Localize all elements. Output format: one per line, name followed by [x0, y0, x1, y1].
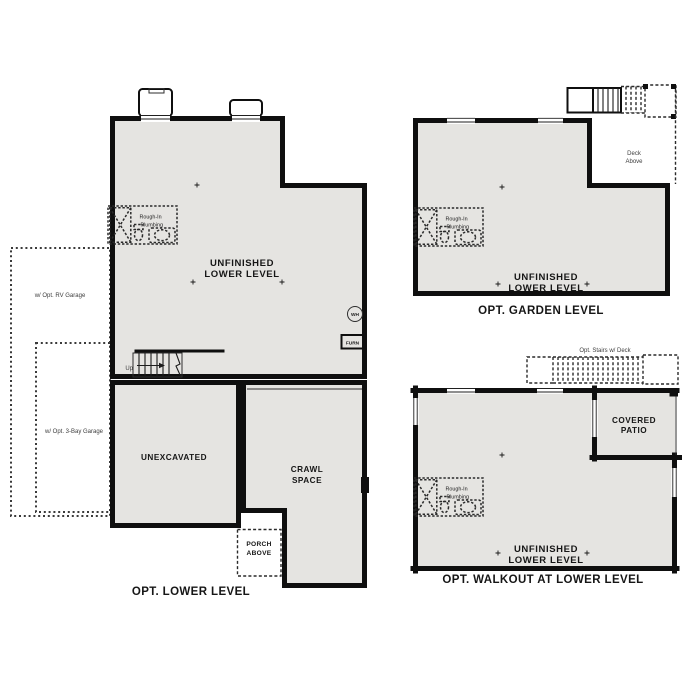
deck-post	[671, 84, 676, 89]
rv-garage-dashed-outline	[11, 248, 110, 516]
deck-stair-dashed-box	[645, 85, 676, 117]
crawl-space-label-1: CRAWL	[291, 465, 324, 474]
porch-above: PORCH ABOVE	[238, 530, 282, 577]
rough-in-label-1: Rough-In	[446, 217, 468, 223]
garden-unfinished-label-2: LOWER LEVEL	[508, 283, 583, 294]
rough-in-label-1: Rough-In	[446, 487, 468, 493]
lower-level-floor-area	[110, 118, 367, 378]
three-bay-garage-label: w/ Opt. 3-Bay Garage	[44, 429, 104, 435]
garden-floor-area	[413, 120, 670, 296]
stair-dashed-treads	[553, 357, 643, 383]
garden-level-title: OPT. GARDEN LEVEL	[478, 305, 604, 317]
stairs-up-label: Up	[125, 366, 133, 372]
deck-post	[643, 84, 648, 89]
window-patio-wall	[591, 400, 598, 437]
porch-label-2: ABOVE	[247, 550, 272, 557]
plan-lower-level: w/ Opt. RV Garage w/ Opt. 3-Bay Garage	[11, 89, 369, 599]
porch-label-1: PORCH	[246, 541, 271, 548]
window-left-wall	[412, 398, 419, 425]
window-right-wall	[671, 468, 678, 497]
stair-landing	[568, 88, 594, 113]
walkout-unfinished-label-2: LOWER LEVEL	[508, 555, 583, 566]
opt-stairs-label: Opt. Stairs w/ Deck	[579, 348, 631, 354]
plan-garden-level: Deck Above Rough-In Plumbing	[413, 84, 676, 317]
garden-unfinished-label-1: UNFINISHED	[514, 272, 578, 283]
rough-in-label-2: Plumbing	[447, 225, 469, 231]
floorplan-sheet: w/ Opt. RV Garage w/ Opt. 3-Bay Garage	[0, 0, 687, 687]
walkout-title: OPT. WALKOUT AT LOWER LEVEL	[442, 574, 643, 586]
stair-upper-dashed-box	[643, 355, 678, 384]
rough-in-label-1: Rough-In	[140, 215, 162, 221]
stair-treads-box	[593, 88, 621, 113]
three-bay-garage-dashed-outline	[36, 343, 110, 512]
furnace-label: FURN	[346, 341, 360, 347]
covered-patio-label-2: PATIO	[621, 426, 647, 435]
covered-patio-label-1: COVERED	[612, 416, 656, 425]
optional-garage-outlines: w/ Opt. RV Garage w/ Opt. 3-Bay Garage	[11, 248, 110, 516]
lower-level-title: OPT. LOWER LEVEL	[132, 586, 250, 598]
wall-pier-right	[361, 477, 369, 493]
deck-above-area: Deck Above	[625, 89, 675, 184]
walkout-unfinished-label-1: UNFINISHED	[514, 544, 578, 555]
rough-in-label-2: Plumbing	[141, 223, 163, 229]
wall-pier-left	[237, 477, 246, 493]
plan-walkout: Opt. Stairs w/ Deck	[412, 348, 679, 586]
crawl-space-label-2: SPACE	[292, 476, 322, 485]
stair-landing-dashed	[527, 357, 553, 383]
garden-deck-stairs	[568, 84, 677, 119]
unfinished-lower-label-2: LOWER LEVEL	[204, 269, 279, 280]
walkout-opt-stairs: Opt. Stairs w/ Deck	[527, 348, 678, 384]
floorplan-drawing: w/ Opt. RV Garage w/ Opt. 3-Bay Garage	[0, 0, 687, 687]
deck-above-label-2: Above	[625, 159, 643, 165]
patio-corner-post	[670, 388, 679, 397]
rough-in-label-2: Plumbing	[447, 495, 469, 501]
water-heater-label: WH	[351, 312, 360, 318]
deck-above-label-1: Deck	[627, 151, 642, 157]
window-wells	[139, 89, 262, 117]
stair-dashed-treads	[621, 87, 645, 114]
unfinished-lower-label-1: UNFINISHED	[210, 258, 274, 269]
rv-garage-label: w/ Opt. RV Garage	[34, 293, 86, 299]
window-well-right	[230, 100, 262, 116]
unexcavated-label: UNEXCAVATED	[141, 453, 207, 462]
